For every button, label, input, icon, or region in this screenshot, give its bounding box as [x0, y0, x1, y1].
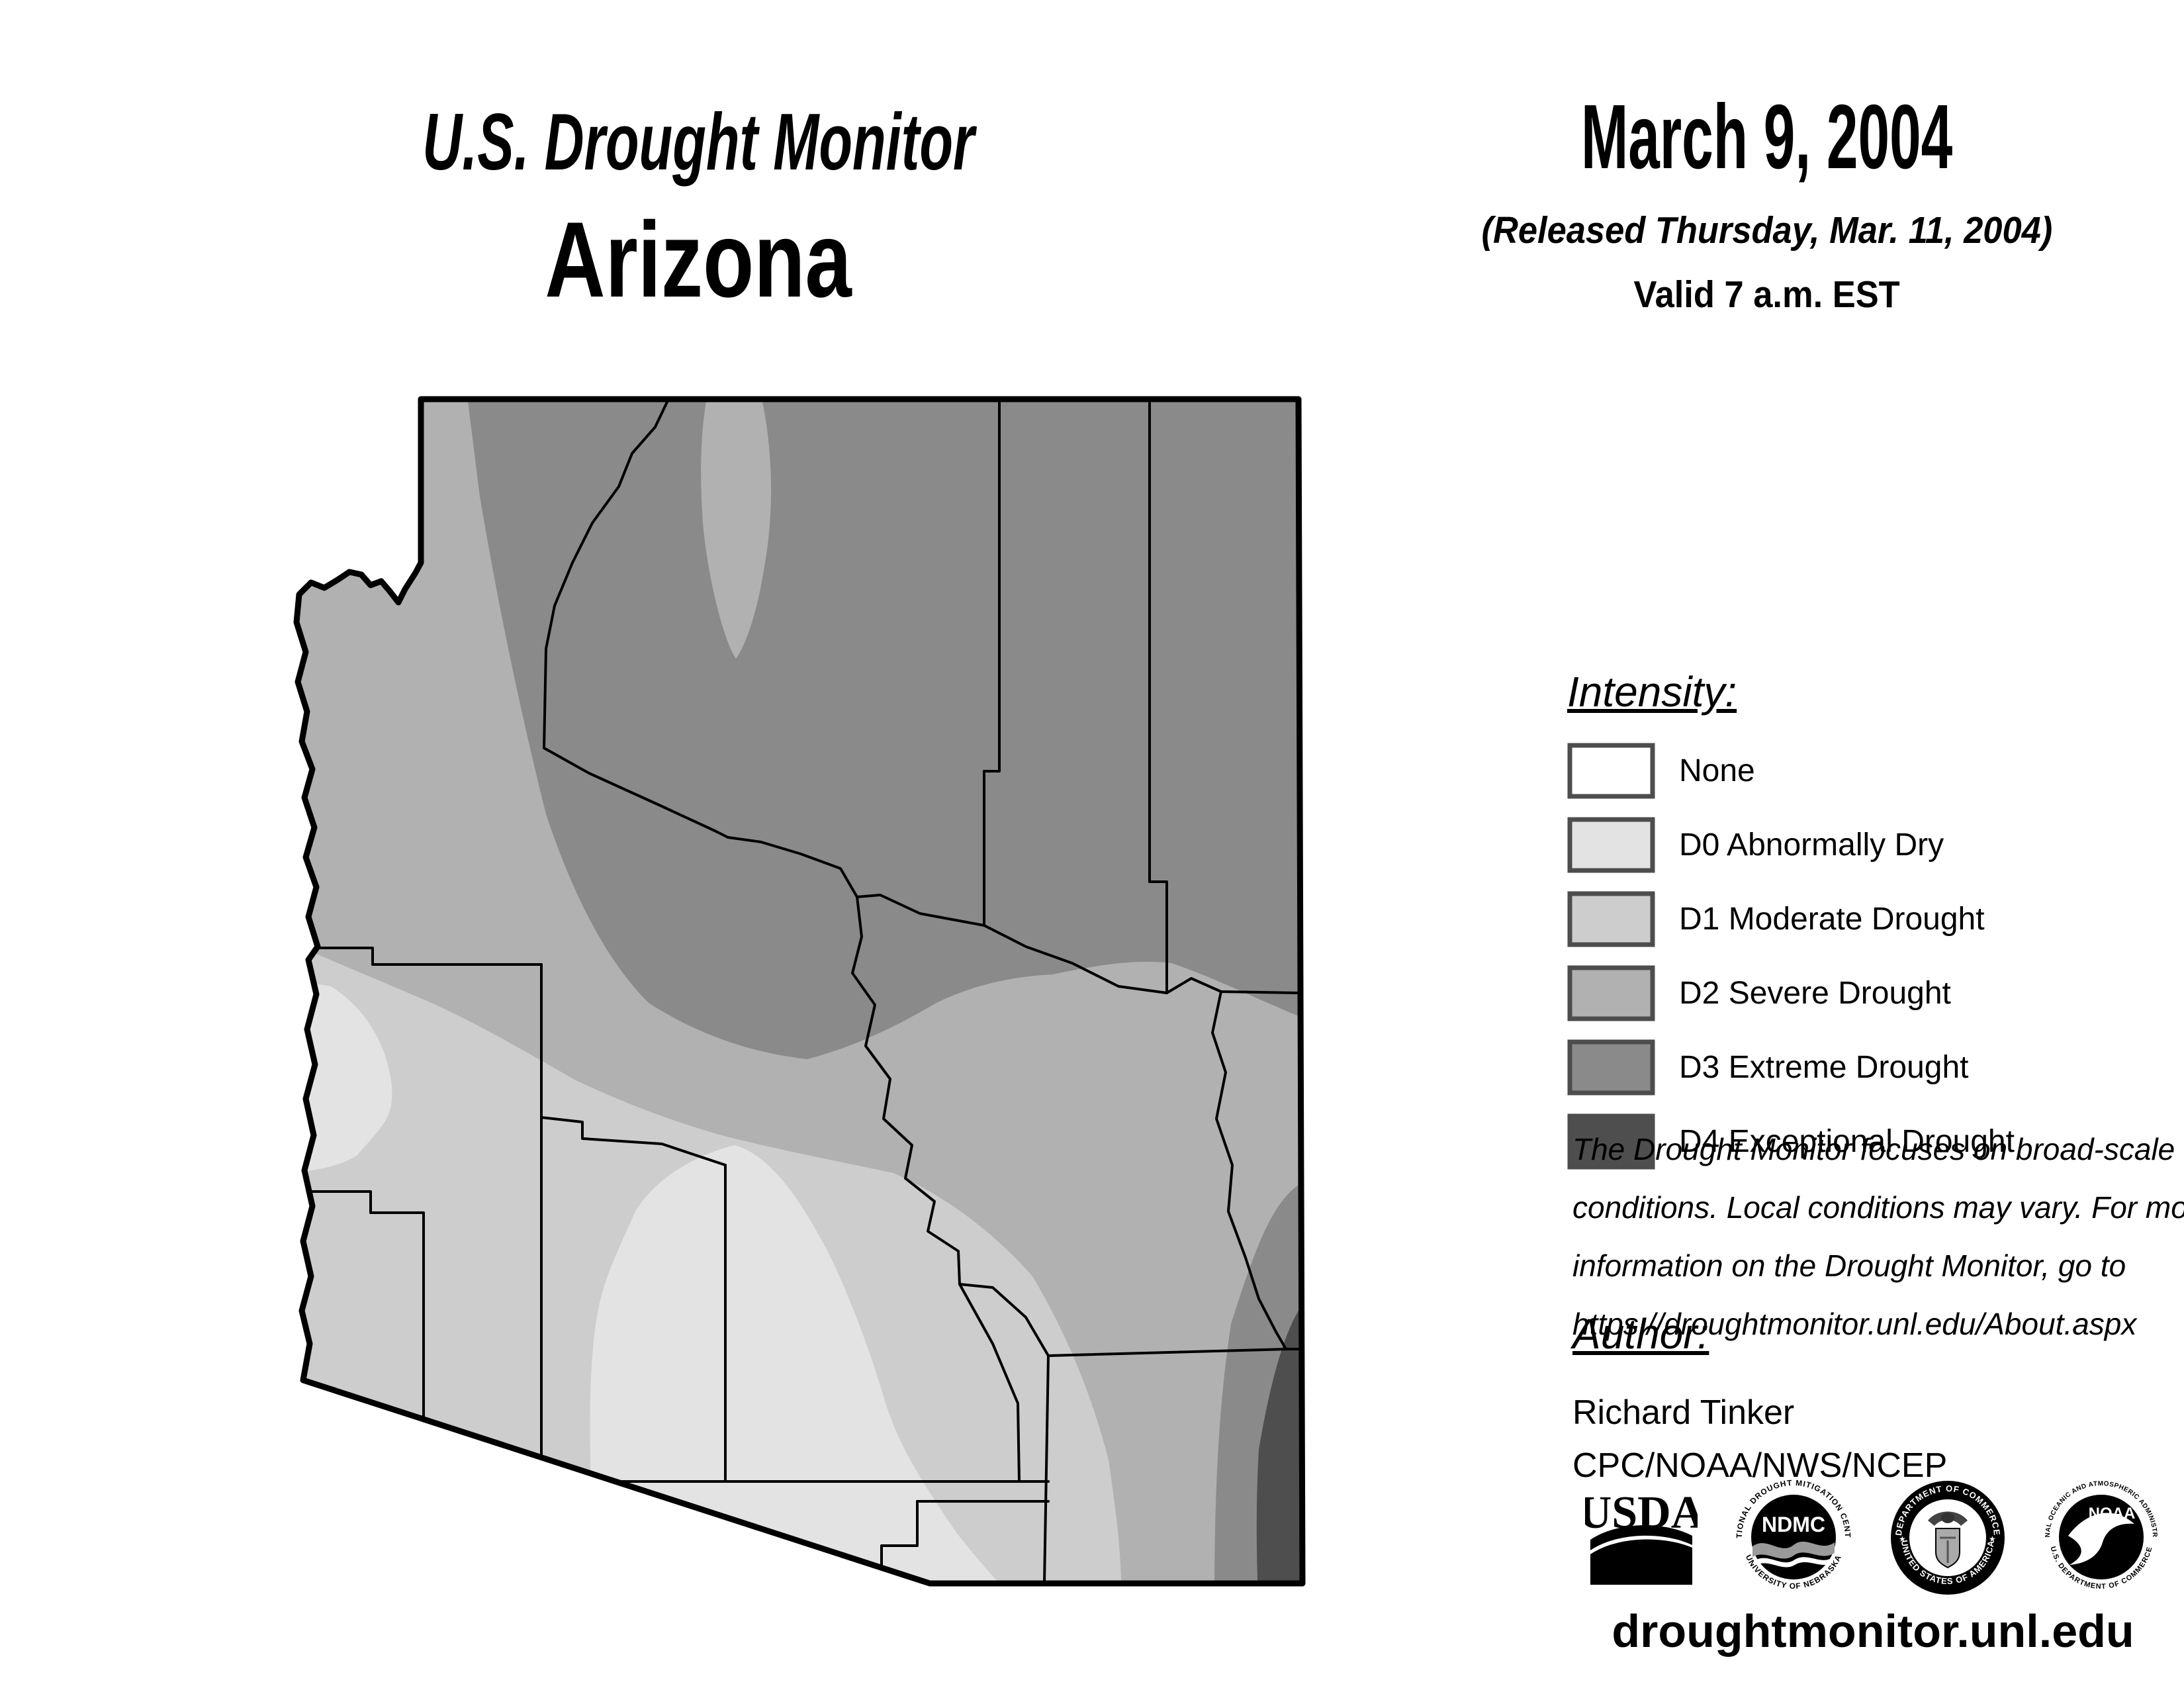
- legend-item-d1: D1 Moderate Drought: [1567, 891, 2015, 947]
- author-name: Richard Tinker: [1572, 1393, 1947, 1432]
- none-swatch: [1567, 743, 1655, 799]
- author-block: Author: Richard Tinker CPC/NOAA/NWS/NCEP: [1572, 1309, 1947, 1485]
- legend-label: D0 Abnormally Dry: [1679, 827, 1944, 863]
- arizona-map-svg: [258, 364, 1370, 1622]
- disclaimer-line: The Drought Monitor focuses on broad-sca…: [1572, 1120, 2184, 1178]
- valid-time: Valid 7 a.m. EST: [1634, 276, 1900, 314]
- author-heading: Author:: [1572, 1309, 1947, 1358]
- legend-label: None: [1679, 753, 1755, 789]
- title-block: U.S. Drought Monitor Arizona: [285, 99, 1112, 314]
- agency-logos: USDA NATIONAL DROUGHT MITIGATION CENTER …: [1585, 1477, 2161, 1597]
- legend-item-d3: D3 Extreme Drought: [1567, 1039, 2015, 1096]
- state-name-title: Arizona: [545, 207, 851, 314]
- drought-monitor-url: droughtmonitor.unl.edu: [1608, 1605, 2138, 1658]
- arizona-drought-map: [258, 364, 1370, 1622]
- ndmc-logo-text: NDMC: [1762, 1513, 1825, 1536]
- noaa-logo-text: NOAA: [2089, 1505, 2136, 1523]
- ndmc-circle: [1751, 1495, 1836, 1579]
- doc-star-left: ★: [1899, 1534, 1906, 1544]
- drought-shading-layer: [258, 364, 1370, 1622]
- legend-item-none: None: [1567, 743, 2015, 799]
- usda-logo: USDA: [1585, 1484, 1698, 1590]
- legend-item-d2: D2 Severe Drought: [1567, 965, 2015, 1021]
- ndmc-logo: NATIONAL DROUGHT MITIGATION CENTER UNIVE…: [1734, 1477, 1853, 1597]
- legend-label: D3 Extreme Drought: [1679, 1049, 1969, 1086]
- d1-swatch: [1567, 891, 1655, 947]
- usda-swoosh-lower: [1590, 1540, 1692, 1585]
- doc-star-right: ★: [1989, 1534, 1996, 1544]
- d0-swatch: [1567, 817, 1655, 873]
- noaa-logo: NATIONAL OCEANIC AND ATMOSPHERIC ADMINIS…: [2042, 1477, 2161, 1597]
- doc-seal: DEPARTMENT OF COMMERCE UNITED STATES OF …: [1889, 1479, 2005, 1595]
- intensity-legend: Intensity: None D0 Abnormally Dry D1 Mod…: [1567, 667, 2015, 1188]
- doc-eagle-head: [1941, 1513, 1954, 1523]
- map-date: March 9, 2004: [1581, 91, 1952, 183]
- release-date: (Released Thursday, Mar. 11, 2004): [1482, 212, 2053, 250]
- date-block: March 9, 2004 (Released Thursday, Mar. 1…: [1416, 91, 2118, 314]
- disclaimer-line: conditions. Local conditions may vary. F…: [1572, 1178, 2184, 1237]
- disclaimer-line: information on the Drought Monitor, go t…: [1572, 1237, 2184, 1295]
- d2-swatch: [1567, 965, 1655, 1021]
- page-title: U.S. Drought Monitor: [422, 99, 974, 184]
- legend-label: D2 Severe Drought: [1679, 975, 1951, 1011]
- drought-monitor-report: U.S. Drought Monitor Arizona March 9, 20…: [0, 0, 2184, 1688]
- legend-heading: Intensity:: [1567, 667, 2015, 716]
- d3-swatch: [1567, 1039, 1655, 1096]
- legend-item-d0: D0 Abnormally Dry: [1567, 817, 2015, 873]
- legend-label: D1 Moderate Drought: [1679, 901, 1985, 937]
